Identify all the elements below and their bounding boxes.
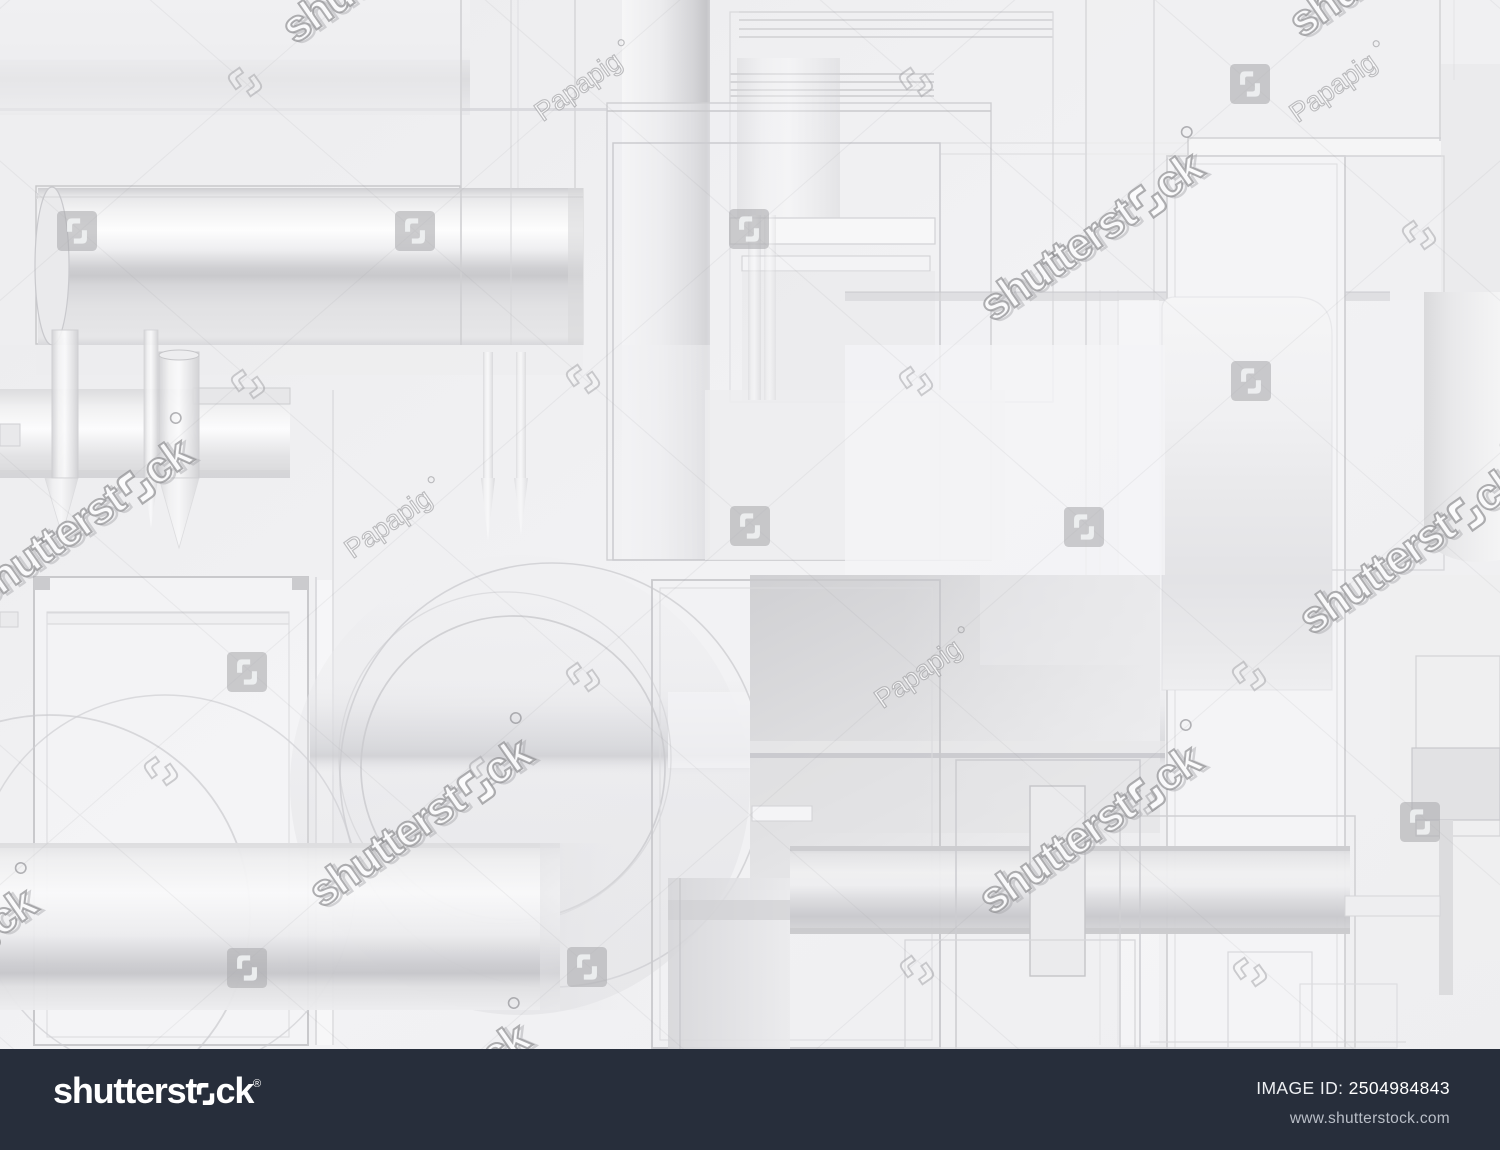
svg-text:ck: ck bbox=[216, 1070, 256, 1111]
svg-text:www.shutterstock.com: www.shutterstock.com bbox=[1289, 1110, 1450, 1127]
svg-text:®: ® bbox=[253, 1078, 261, 1090]
svg-text:IMAGE ID: 2504984843: IMAGE ID: 2504984843 bbox=[1256, 1078, 1450, 1098]
svg-text:shutterst: shutterst bbox=[53, 1070, 197, 1111]
